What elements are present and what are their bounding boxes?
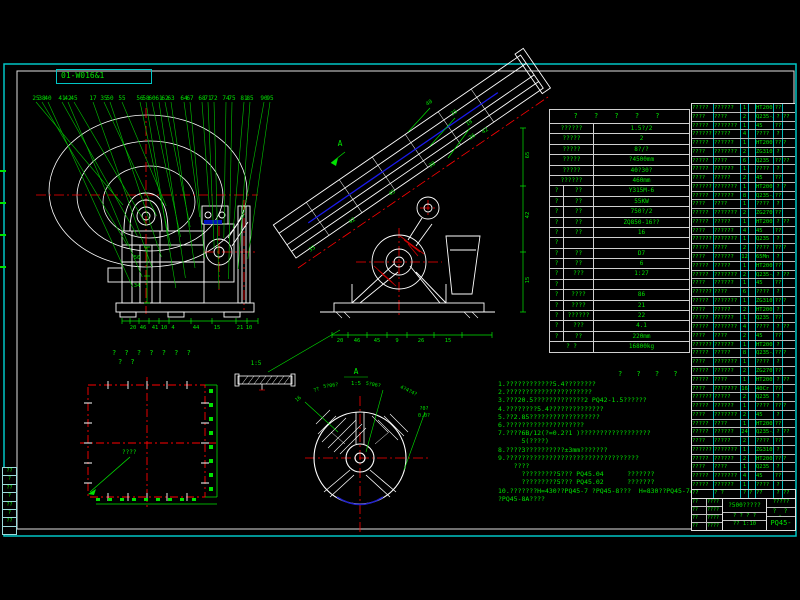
plan-title: ? ? ? ? ? ? ? [112, 349, 193, 357]
parts-list-cell [783, 437, 795, 445]
parts-list-cell: ZG310 [756, 446, 774, 454]
parts-list-cell [783, 209, 795, 217]
parts-list-cell: ? [774, 183, 783, 191]
parts-list-cell: ? [783, 349, 795, 357]
dim-label: 46 [354, 338, 361, 344]
wheel-label: ?0? [419, 406, 428, 412]
parts-list-row: ????????1Q235? [692, 463, 795, 472]
signature-value: ???? [707, 499, 722, 506]
parts-list-cell: ?????? [714, 227, 741, 235]
parts-list-cell: ?? [774, 192, 783, 200]
parts-list-cell: ? [774, 463, 783, 471]
parts-list-cell: ?? [774, 244, 783, 252]
parts-list-cell: ? [774, 306, 783, 314]
note-line: 10.???????H=430??PQ45-7 ?PQ45-8??? H=830… [498, 487, 698, 495]
parts-list-cell: ????? [692, 271, 714, 279]
parts-list-cell: 1 [741, 358, 749, 366]
parts-list-cell: ???? [692, 463, 714, 471]
parts-list-cell [749, 122, 756, 130]
part-number-label: 55 [118, 95, 126, 102]
parameter-cell: ?????? [564, 311, 594, 320]
dim-label: 45 [374, 338, 381, 344]
parts-list-cell: ????? [692, 472, 714, 480]
note-line: ?????????5??? PQ45.02 ??????? [498, 478, 698, 486]
parts-list-cell: ?????? [714, 367, 741, 375]
parameter-row: ?????21 [550, 301, 689, 311]
parts-list-cell [749, 165, 756, 173]
parts-list-row: ?????????????1HT200?? [692, 183, 795, 192]
parameter-row: ? [550, 238, 689, 248]
parts-list-cell: 1 [741, 262, 749, 270]
parts-list-cell: ???? [714, 157, 741, 165]
dim-label: 4 [171, 325, 175, 331]
signature-grid: ???????????????????????? [692, 499, 723, 530]
signature-row: ?????? [692, 523, 722, 530]
parts-list-cell: 4 [741, 227, 749, 235]
parts-list-cell: 1 [741, 297, 749, 305]
edge-grid-cell: ? [3, 476, 16, 484]
parts-list-cell: ? [774, 218, 783, 226]
parts-list-cell: Q235-A [756, 192, 774, 200]
parts-list-row: ??????????1HT200??? [692, 218, 795, 227]
parts-list-cell: ????? [714, 393, 741, 401]
parts-list-cell: ???? [692, 385, 714, 393]
drawing-type: ? ? ? [767, 508, 795, 518]
parameter-cell [594, 280, 689, 289]
parameter-table-title: ? ? ? ? ? [550, 110, 689, 124]
parts-list-cell: Q235 [756, 235, 774, 243]
parts-list-row: ?????????2??????? [692, 244, 795, 253]
parts-list-cell: ????? [692, 157, 714, 165]
parts-list-cell [749, 314, 756, 322]
parts-list-cell [749, 455, 756, 463]
section-marker: A [338, 139, 343, 148]
dim-label: 34 [134, 283, 141, 289]
parts-list-cell: ???? [692, 411, 714, 419]
parts-list-cell: 45 [756, 279, 774, 287]
parts-list-cell: ????? [692, 367, 714, 375]
parts-list-cell: ????? [692, 376, 714, 384]
parts-list-cell [783, 262, 795, 270]
parts-list-cell [749, 367, 756, 375]
parameter-cell: ???? [564, 301, 594, 310]
parts-list-cell: ????? [692, 104, 714, 112]
parameter-cell: ? [550, 321, 564, 330]
organization: ????? [767, 499, 795, 508]
parts-list-cell [749, 376, 756, 384]
parts-list-cell [749, 393, 756, 401]
parts-list-row: ????????????445?? [692, 472, 795, 481]
edge-grid-cell [3, 527, 16, 534]
parts-list-cell [749, 200, 756, 208]
parts-list-cell: ???? [692, 200, 714, 208]
parameter-row: ?????40?30? [550, 166, 689, 176]
parts-list-cell: 45 [756, 472, 774, 480]
parts-list-row: ???????????2ZG310? [692, 148, 795, 157]
technical-notes: 1.????????????5.4????????2.?????????????… [498, 380, 698, 503]
parts-list-cell: ???? [692, 227, 714, 235]
parts-list-cell: 2 [741, 148, 749, 156]
parts-list-row: ????????1????? [692, 200, 795, 209]
part-number-label: 72 [210, 95, 218, 102]
parameter-cell: ?4500mm [594, 155, 689, 164]
parts-list-cell: ???? [756, 244, 774, 252]
parts-list-cell: ???? [756, 358, 774, 366]
parts-list-cell: HT200 [756, 104, 774, 112]
parts-list-cell: ?????? [692, 235, 714, 243]
parts-list-cell: ??????? [714, 148, 741, 156]
parts-list-row: ?????????????1Q235? [692, 235, 795, 244]
parts-list-cell [749, 192, 756, 200]
parts-list-cell: ?????? [714, 341, 741, 349]
view-marker: A [354, 367, 359, 376]
parameter-cell: 460mm [594, 176, 689, 185]
parts-list-cell: ?? [774, 402, 783, 410]
parts-list-cell: ????? [714, 437, 741, 445]
note-line: 3.???20.5?????????????2 PQ42-1.5?????? [498, 396, 698, 404]
wheel-label: ?? [313, 386, 321, 394]
parts-list-cell: ???? [756, 481, 774, 489]
parts-list-cell: ????? [714, 130, 741, 138]
parts-list-cell: 1 [741, 314, 749, 322]
parts-list-cell: 16 [741, 385, 749, 393]
parameter-cell: ? [550, 290, 564, 299]
parts-list-cell: ??????? [714, 323, 741, 331]
dim-label: 15 [525, 277, 531, 284]
parameter-cell [594, 238, 689, 247]
parts-list-cell: ? [783, 402, 795, 410]
parts-list-cell: ??????? [714, 235, 741, 243]
parts-list-cell [749, 297, 756, 305]
parts-list-cell: ?????? [714, 165, 741, 173]
parts-list-header-cell: ?? [756, 490, 774, 498]
parameter-cell: ?? [564, 228, 594, 237]
parameter-cell: 6 [594, 259, 689, 268]
parts-list-cell: 1 [741, 481, 749, 489]
parts-list-cell: ??????? [714, 411, 741, 419]
dim-label: 9 [395, 338, 398, 344]
parameter-cell: ?? [564, 197, 594, 206]
signature-value: ???? [707, 523, 722, 530]
parameter-cell: ????? [550, 155, 594, 164]
parts-list-cell [749, 385, 756, 393]
parts-list-row: ????????????4??????? [692, 323, 795, 332]
parameter-cell: 86 [594, 290, 689, 299]
parts-list-cell: ?? [774, 314, 783, 322]
view-scale: 1:5 [351, 381, 361, 387]
notes-header: ? ? ? ? [618, 370, 683, 378]
parts-list-cell: ?? [774, 472, 783, 480]
parts-list-cell [749, 235, 756, 243]
parts-list-row: ????????2Q235-A??? [692, 113, 795, 122]
parts-list-cell: ?? [774, 385, 783, 393]
parts-list-row: ???????????1????? [692, 358, 795, 367]
parts-list-cell: 40Cr [756, 385, 774, 393]
flywheel-view: 16??5?06?5?06?4?4?4??0?0.0?A1:5 [294, 367, 430, 534]
parts-list-row: ??????????445?? [692, 227, 795, 236]
dim-label: 15 [445, 338, 452, 344]
parts-list-row: ???????????1????? [692, 165, 795, 174]
parts-list-cell: ? [783, 139, 795, 147]
parts-list-cell: ????? [692, 192, 714, 200]
parts-list-cell [749, 288, 756, 296]
parts-list-cell: ?????? [714, 139, 741, 147]
parameter-cell: ? ? [550, 342, 594, 351]
parts-list-cell [749, 113, 756, 121]
parts-list-cell: ?????? [714, 253, 741, 261]
parts-list-cell: ?? [774, 349, 783, 357]
parts-list-cell: ? [774, 130, 783, 138]
parts-list-cell: ?? [774, 367, 783, 375]
parts-list-cell: ????? [692, 349, 714, 357]
parts-list-cell [783, 174, 795, 182]
parts-list-cell: ? [774, 341, 783, 349]
parameter-cell: ? [550, 249, 564, 258]
parts-list-cell: HT200 [756, 183, 774, 191]
parts-list-cell [749, 104, 756, 112]
parts-list-cell: ? [783, 244, 795, 252]
parts-list-cell [783, 288, 795, 296]
parts-list-cell [783, 420, 795, 428]
dim-label: 35 [308, 245, 317, 254]
parameter-cell: ?? [564, 249, 594, 258]
dim-label: 20 [130, 325, 137, 331]
dim-label: 42 [348, 217, 357, 226]
parts-list-cell: ????? [692, 428, 714, 436]
parts-list-cell: ?????? [692, 288, 714, 296]
parts-list-cell: ?? [774, 209, 783, 217]
parts-list-cell [749, 253, 756, 261]
rim-hatch [316, 410, 408, 454]
parts-list-cell [749, 227, 756, 235]
parts-list-cell: ????? [692, 314, 714, 322]
parameter-cell: ? [550, 301, 564, 310]
parts-list-cell: ???? [714, 463, 741, 471]
parameter-row: ????1:27 [550, 269, 689, 279]
parts-list-cell [783, 130, 795, 138]
parts-list-cell: 2 [741, 209, 749, 217]
parts-list-row: ??????????6????? [692, 288, 795, 297]
note-line: 8.????3??????????±3mm??????? [498, 446, 698, 454]
parts-list-cell: 1 [741, 200, 749, 208]
dim-label: 26 [418, 338, 425, 344]
parts-list-cell [749, 358, 756, 366]
parts-list-cell: ?? [783, 428, 795, 436]
parts-list-cell [783, 279, 795, 287]
parts-list-cell: ????? [714, 262, 741, 270]
parts-list-cell: 2 [741, 437, 749, 445]
parts-list-cell: ????? [692, 122, 714, 130]
parameter-cell: 16 [594, 228, 689, 237]
parameter-row: ???????22 [550, 311, 689, 321]
parts-list-cell [783, 358, 795, 366]
parts-list-cell [749, 130, 756, 138]
parts-list-cell: ? [783, 455, 795, 463]
parts-list-cell: ?????? [714, 192, 741, 200]
parts-list-cell: ?? [774, 437, 783, 445]
front-view: 2538404142451735505556586061626364676871… [32, 95, 274, 331]
parameter-cell: ?????? [550, 176, 594, 185]
edge-grid-cell: ?? [3, 485, 16, 493]
parts-list-cell: 4 [741, 130, 749, 138]
parts-list-cell: ????? [692, 139, 714, 147]
parts-list-cell: ? [783, 183, 795, 191]
parameter-cell: 22 [594, 311, 689, 320]
parts-list-header: ??? ???????? [692, 490, 795, 499]
parts-list-cell [749, 420, 756, 428]
parts-list-cell: ?????? [714, 428, 741, 436]
parts-list-row: ???????????8Q235-A?? [692, 192, 795, 201]
parts-list-cell: ??????? [714, 209, 741, 217]
drawing-scale: ?? 1:10 [723, 521, 766, 530]
parameter-cell: 16800kg [594, 342, 689, 351]
parts-list-cell: ? [774, 148, 783, 156]
parts-list-cell: ?? [783, 218, 795, 226]
parts-list-row: ???????????24Q235-A??? [692, 428, 795, 437]
parts-list-cell: ???? [714, 288, 741, 296]
parts-list-cell [749, 472, 756, 480]
parts-list-cell: ?????? [692, 446, 714, 454]
parts-list-cell [749, 139, 756, 147]
parts-list-cell: 6 [741, 157, 749, 165]
parameter-cell: ? [550, 332, 564, 341]
note-line: 9.?????????????????????????????????? [498, 454, 698, 462]
parts-list-row: ?????????2?????? [692, 437, 795, 446]
edge-grid-cell: ? [3, 493, 16, 501]
parts-list-cell [749, 402, 756, 410]
parts-list-cell: 1 [741, 122, 749, 130]
parts-list-cell: ????? [692, 209, 714, 217]
parts-list-cell: 8 [741, 349, 749, 357]
parts-list-row: ?????????????1ZG310? [692, 446, 795, 455]
parts-list-cell: Q235-A [756, 428, 774, 436]
parts-list-cell: ???? [714, 332, 741, 340]
parts-list-cell: 2 [741, 244, 749, 252]
section-dimensions [331, 108, 526, 338]
parts-list-cell: 1 [741, 376, 749, 384]
dim-label: 21 [237, 325, 244, 331]
parameter-row: ?????2 [550, 134, 689, 144]
parts-list-cell: 1 [741, 183, 749, 191]
parts-list-cell: 2 [741, 411, 749, 419]
parts-list-cell: ?? [774, 455, 783, 463]
parts-list-cell: ???? [756, 402, 774, 410]
drawing-subtitle: ? ? ? ? [723, 513, 766, 521]
parameter-cell [564, 280, 594, 289]
note-line: 4.????????5.4?????????????? [498, 405, 698, 413]
parts-list-cell [783, 446, 795, 454]
dim-label: 50 [134, 255, 141, 261]
parameter-table: ? ? ? ? ? ??????1.5?/2?????2?????8?/????… [549, 109, 690, 353]
plan-leader-label: ???? [122, 449, 136, 456]
parts-list-cell: ??????? [714, 271, 741, 279]
parts-list-cell: 2 [741, 332, 749, 340]
parts-list-row: ??????????1HT200?? [692, 262, 795, 271]
note-line: 6.???????????????????? [498, 421, 698, 429]
parts-list-cell: ? [774, 253, 783, 261]
parameter-cell: 21 [594, 301, 689, 310]
parts-list-cell: HT200 [756, 139, 774, 147]
drawing-number: PQ45-0B [767, 517, 795, 530]
parts-list-cell: ZG310 [756, 148, 774, 156]
parts-list-cell: Q235 [756, 314, 774, 322]
parts-list-row: ???????????1640Cr?? [692, 385, 795, 394]
parts-list-cell: ???? [692, 437, 714, 445]
parts-list-cell: 2 [741, 113, 749, 121]
parts-list-cell: ???? [756, 165, 774, 173]
parts-list-cell: ???? [756, 323, 774, 331]
parts-list-cell: ????? [714, 349, 741, 357]
parts-list-cell: 2 [741, 306, 749, 314]
parts-list-cell: Q235 [756, 157, 774, 165]
parts-list-cell: ??????? [714, 297, 741, 305]
part-number-label: 45 [70, 95, 78, 102]
parts-list-cell [749, 463, 756, 471]
signature-row: ?????? [692, 499, 722, 507]
parts-list-cell: ?? [774, 332, 783, 340]
parts-list-row: ???????????2HT200??? [692, 455, 795, 464]
parts-list-cell: ? [774, 113, 783, 121]
parameter-cell: D7 [594, 249, 689, 258]
parameter-cell: ?????? [550, 124, 594, 133]
parameter-cell: ? [550, 186, 564, 195]
drawing-title: ?500????? [723, 499, 766, 513]
part-leader-lines [36, 102, 270, 289]
parameter-row: ??????4500mm [550, 155, 689, 165]
parameter-cell: ????? [550, 134, 594, 143]
parts-list-cell [783, 200, 795, 208]
wheel-label: 16 [294, 395, 302, 403]
parts-list-cell [749, 271, 756, 279]
parameter-cell: 750?/2 [594, 207, 689, 216]
parameter-row: ?????8?/? [550, 145, 689, 155]
parts-list-cell [783, 104, 795, 112]
parameter-row: ???6 [550, 259, 689, 269]
signature-value: ???? [707, 515, 722, 522]
parts-list-cell: ???? [714, 113, 741, 121]
parameter-row: ???55KW [550, 197, 689, 207]
parts-list-row: ????????????2ZG270?? [692, 209, 795, 218]
parts-list-cell: ????? [714, 306, 741, 314]
dim-label: 46 [140, 325, 147, 331]
parts-list-cell: ????? [692, 297, 714, 305]
parts-list-cell: 1 [741, 139, 749, 147]
parameter-cell: ?? [564, 259, 594, 268]
parts-list-cell: ????? [714, 174, 741, 182]
parts-list-row: ???????????1HT200??? [692, 139, 795, 148]
parts-list-cell [749, 481, 756, 489]
parts-list-cell: 2 [741, 271, 749, 279]
parts-list-cell: ???? [714, 200, 741, 208]
parts-list-header-cell: ? [749, 490, 756, 498]
edge-grid-cell: ?? [3, 518, 16, 526]
parts-list-cell: ?????? [714, 314, 741, 322]
parts-list-cell: ???? [692, 306, 714, 314]
parts-list-cell [783, 472, 795, 480]
parts-list-cell [783, 192, 795, 200]
parameter-cell: ????? [550, 166, 594, 175]
parameter-row: ????4.1 [550, 321, 689, 331]
dim-label: 20 [337, 338, 344, 344]
parts-list-row: ?????????1HT200??? [692, 376, 795, 385]
parts-list-header-cell: ? [741, 490, 749, 498]
parameter-cell: Y315M-6 [594, 186, 689, 195]
parts-list-cell: ???? [756, 200, 774, 208]
parts-list-cell: ?????? [714, 402, 741, 410]
parts-list-cell: ???? [692, 174, 714, 182]
part-number-label: 40 [44, 95, 52, 102]
parts-list-cell: 1 [741, 463, 749, 471]
